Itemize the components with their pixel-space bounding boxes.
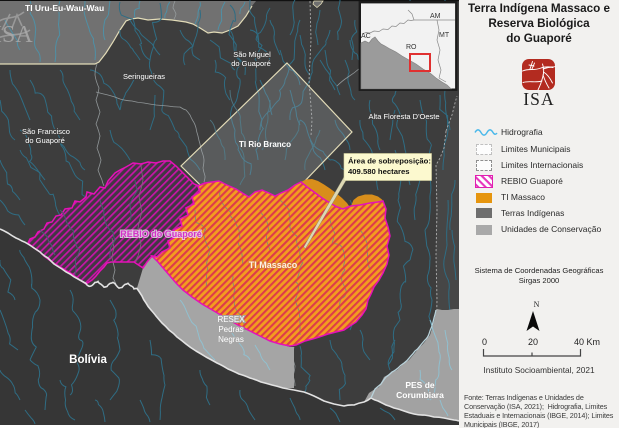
svg-text:PES de: PES de	[405, 380, 435, 390]
svg-text:RESEX: RESEX	[217, 315, 245, 324]
svg-text:Alta Floresta D'Oeste: Alta Floresta D'Oeste	[368, 112, 439, 121]
svg-text:MT: MT	[439, 32, 450, 39]
svg-text:AC: AC	[361, 33, 371, 40]
svg-text:do Guaporé: do Guaporé	[25, 136, 65, 145]
svg-text:São Francisco: São Francisco	[22, 127, 70, 136]
svg-text:do Guaporé: do Guaporé	[231, 59, 271, 68]
svg-text:TI Uru-Eu-Wau-Wau: TI Uru-Eu-Wau-Wau	[25, 3, 104, 13]
svg-text:TI Rio Branco: TI Rio Branco	[239, 140, 291, 149]
svg-text:REBIO do Guaporé: REBIO do Guaporé	[120, 229, 202, 239]
svg-text:RO: RO	[406, 44, 417, 51]
svg-text:São Miguel: São Miguel	[233, 50, 271, 59]
svg-text:Corumbiara: Corumbiara	[396, 390, 444, 400]
svg-text:Bolívia: Bolívia	[69, 354, 107, 366]
svg-text:TI Massaco: TI Massaco	[249, 260, 298, 270]
svg-text:409.580 hectares: 409.580 hectares	[348, 167, 410, 176]
svg-text:ISA: ISA	[0, 22, 33, 48]
svg-text:Área de sobreposição:: Área de sobreposição:	[348, 157, 431, 166]
svg-text:Negras: Negras	[218, 335, 244, 344]
svg-text:AM: AM	[430, 13, 441, 20]
svg-text:Seringueiras: Seringueiras	[123, 72, 165, 81]
svg-text:Pedras: Pedras	[218, 325, 243, 334]
